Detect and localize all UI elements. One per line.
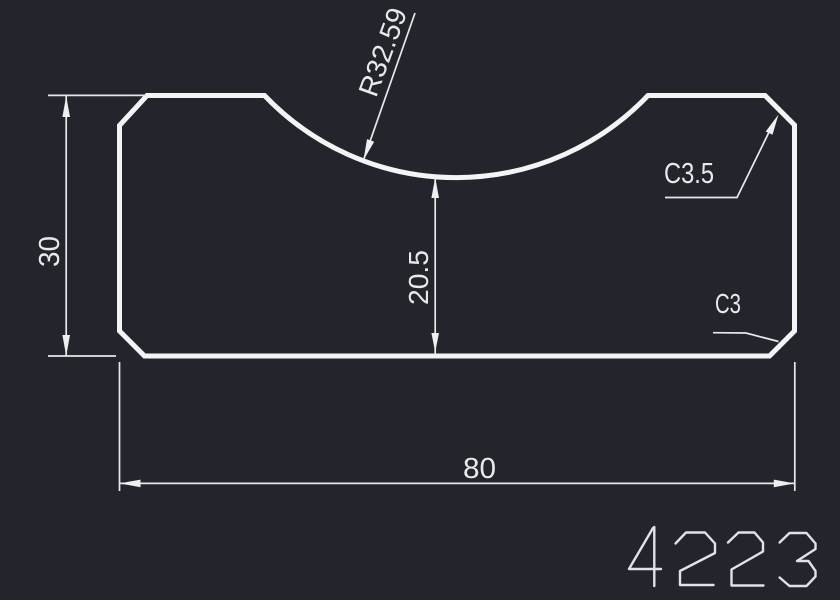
- svg-text:20.5: 20.5: [403, 250, 434, 305]
- svg-text:C3: C3: [715, 288, 741, 319]
- svg-text:80: 80: [463, 453, 496, 485]
- svg-text:C3.5: C3.5: [664, 158, 714, 190]
- svg-text:30: 30: [34, 236, 66, 267]
